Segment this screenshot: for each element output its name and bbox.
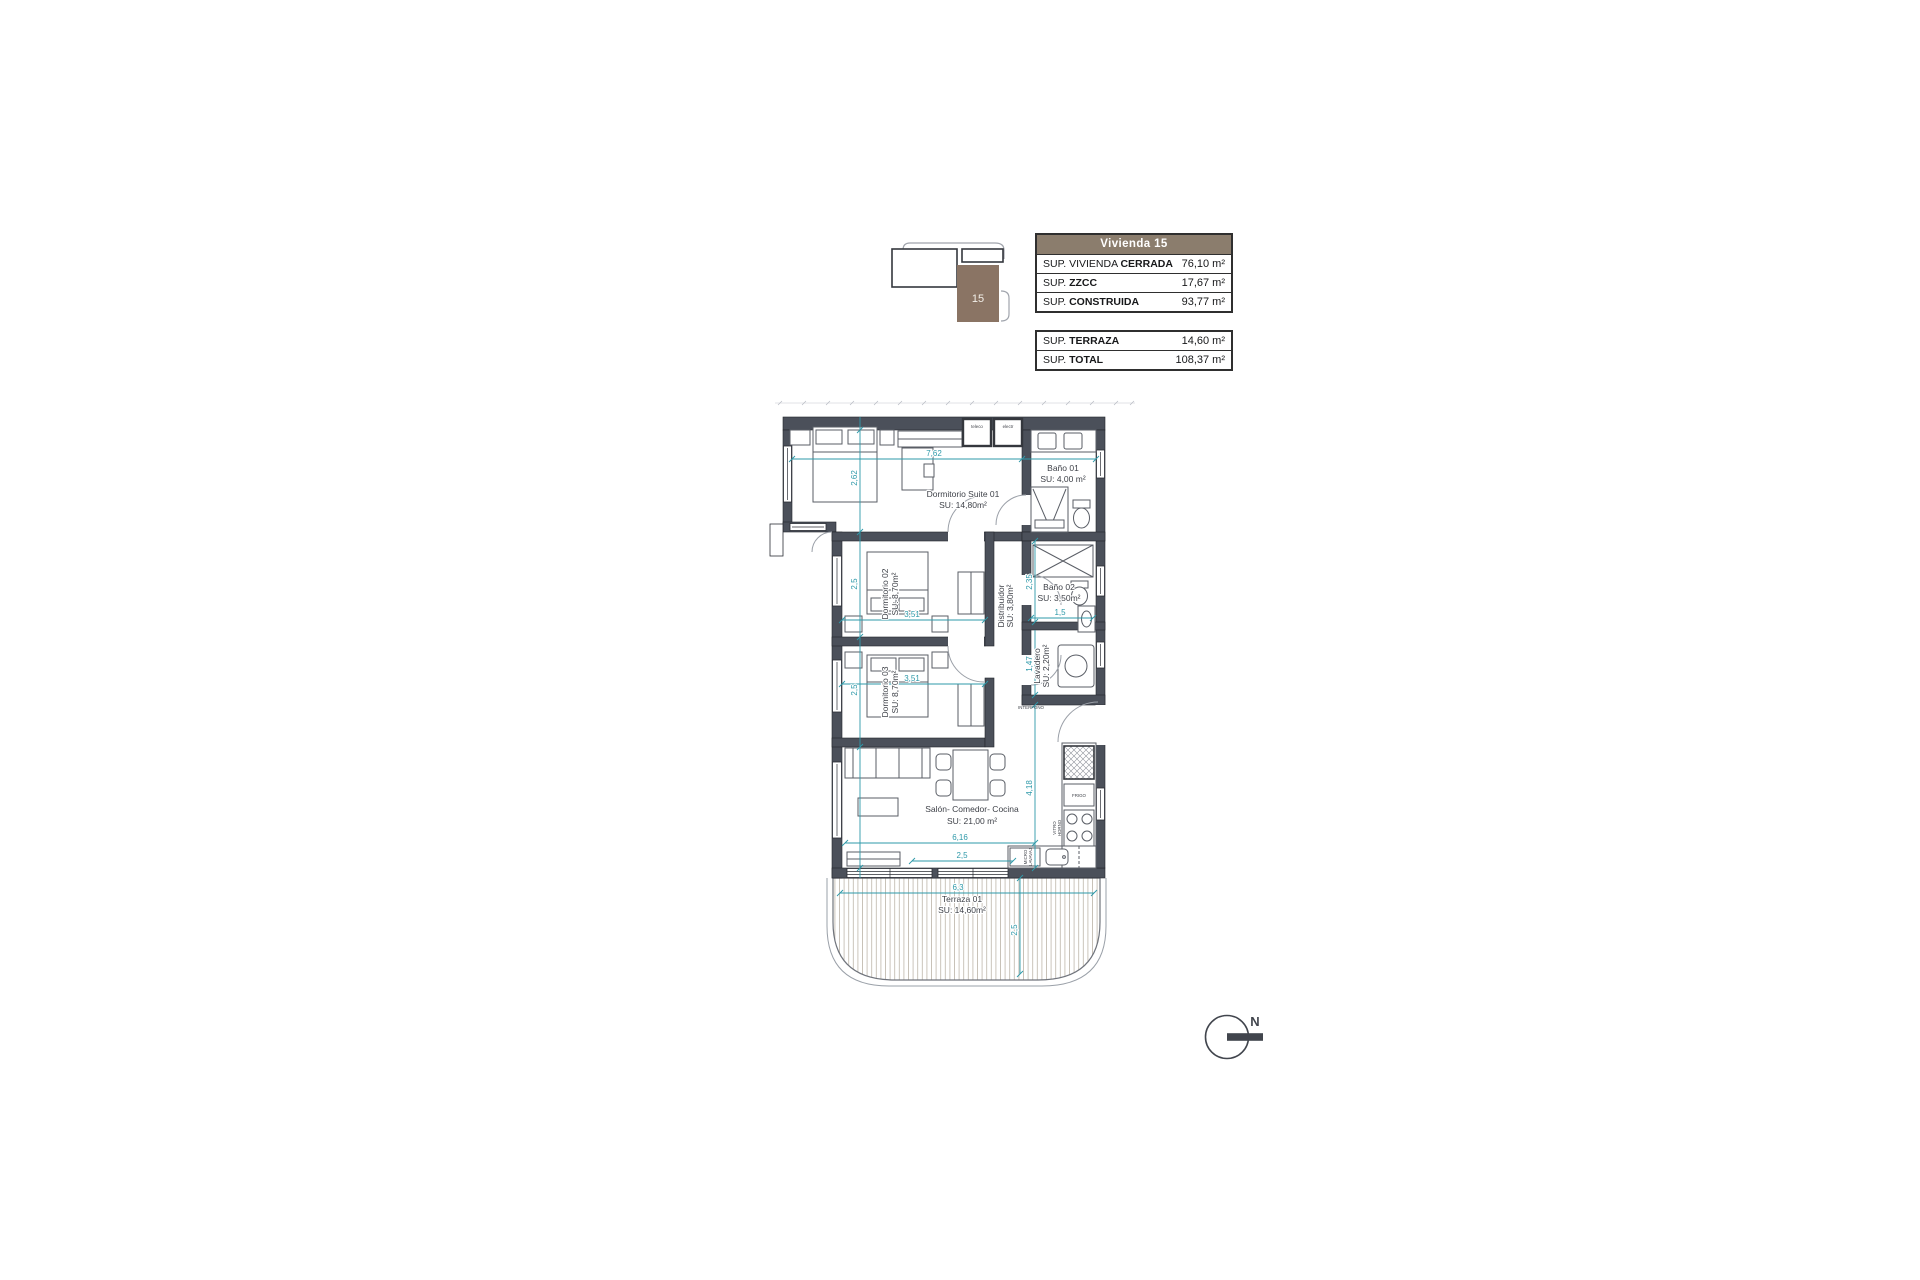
dim-dorm3-width: 3,51 <box>904 674 920 683</box>
wardrobe-suite <box>898 431 962 447</box>
svg-text:SU: 4,00 m²: SU: 4,00 m² <box>1040 474 1086 484</box>
micro-lavavaj-label: MICRO LAVAVAJ <box>1023 848 1033 866</box>
dim-dorm2-height: 2,5 <box>850 578 859 590</box>
svg-text:SU: 2,20m²: SU: 2,20m² <box>1041 644 1051 687</box>
room-label-bano-02: Baño 02 SU: 3,50m² <box>1038 582 1081 603</box>
svg-text:SU: 3,80m²: SU: 3,80m² <box>1005 584 1015 627</box>
room-label-dormitorio-03: Dormitorio 03 SU: 8,70m² <box>880 666 900 717</box>
svg-text:HORNO: HORNO <box>1057 819 1062 836</box>
key-plan: 15 <box>892 243 1009 322</box>
sideboard <box>847 852 900 866</box>
nightstand <box>932 616 948 632</box>
svg-text:Baño 02: Baño 02 <box>1043 582 1075 592</box>
north-arrow-bar <box>1227 1033 1263 1041</box>
svg-text:SU: 21,00 m²: SU: 21,00 m² <box>947 816 997 826</box>
plan-drawing: 15 <box>0 0 1920 1280</box>
coffee-table <box>858 798 898 816</box>
room-label-salon: Salón- Comedor- Cocina SU: 21,00 m² <box>925 804 1019 826</box>
dining-table <box>936 750 1005 800</box>
svg-text:Dormitorio 03: Dormitorio 03 <box>880 666 890 717</box>
dim-salon-width2: 2,5 <box>956 851 968 860</box>
nightstand <box>932 652 948 668</box>
nightstand <box>845 616 862 632</box>
shower-bano1 <box>1031 487 1068 532</box>
dimension-chain <box>775 401 1135 405</box>
key-plan-unit-number: 15 <box>972 293 984 305</box>
dim-salon-height: 4,18 <box>1025 780 1034 796</box>
floor-plan-sheet: Vivienda 15 SUP. VIVIENDA CERRADA 76,10 … <box>0 0 1920 1280</box>
teleco-label: teleco <box>971 424 983 429</box>
svg-text:SU: 14,60m²: SU: 14,60m² <box>938 905 986 915</box>
room-label-lavadero: Lavadero SU: 2,20m² <box>1032 644 1051 687</box>
electr-label: electr <box>1003 424 1014 429</box>
sofa <box>845 748 930 778</box>
svg-text:Baño 01: Baño 01 <box>1047 463 1079 473</box>
key-plan-block <box>892 249 957 287</box>
svg-text:LAVAVAJ: LAVAVAJ <box>1028 848 1033 866</box>
dim-terraza-width: 6,3 <box>952 883 964 892</box>
dim-dorm3-height: 2,5 <box>850 684 859 696</box>
room-label-dormitorio-02: Dormitorio 02 SU: 8,70m² <box>880 568 900 619</box>
north-arrow: N <box>1206 1014 1264 1059</box>
svg-text:SU: 8,70m²: SU: 8,70m² <box>890 670 900 713</box>
svg-text:Dormitorio Suite 01: Dormitorio Suite 01 <box>927 489 1000 499</box>
washer-lavadero <box>1058 645 1094 687</box>
wardrobe-dorm2 <box>958 572 984 614</box>
dim-dorm2-width: 3,51 <box>904 610 920 619</box>
dim-salon-width: 6,16 <box>952 833 968 842</box>
room-label-distribuidor: Distribuidor SU: 3,80m² <box>996 584 1015 627</box>
svg-text:Dormitorio 02: Dormitorio 02 <box>880 568 890 619</box>
room-label-dormitorio-suite-01: Dormitorio Suite 01 SU: 14,80m² <box>927 489 1000 510</box>
nightstand <box>845 652 862 668</box>
shower-bano2 <box>1033 545 1093 577</box>
vitro-horno-label: VITRO HORNO <box>1052 819 1062 836</box>
kitchen-counter <box>1008 743 1096 868</box>
nightstand <box>790 430 810 445</box>
svg-text:SU: 3,50m²: SU: 3,50m² <box>1038 593 1081 603</box>
interfono-label: INTERFONO <box>1018 705 1044 710</box>
svg-text:SU: 14,80m²: SU: 14,80m² <box>939 500 987 510</box>
nightstand <box>880 430 894 445</box>
dim-bano2-height: 2,35 <box>1025 574 1034 590</box>
north-label: N <box>1250 1014 1259 1029</box>
dim-bano2-width: 1,5 <box>1054 608 1066 617</box>
key-plan-block <box>962 249 1003 262</box>
dim-suite-width: 7,62 <box>926 449 942 458</box>
room-label-bano-01: Baño 01 SU: 4,00 m² <box>1040 463 1086 484</box>
frigo-label: FRIGO <box>1072 793 1086 798</box>
vanity-bano1 <box>1031 430 1096 452</box>
svg-text:SU: 8,70m²: SU: 8,70m² <box>890 572 900 615</box>
bed-suite <box>813 427 877 502</box>
wardrobe-dorm3 <box>958 684 984 726</box>
toilet-bano1 <box>1073 500 1090 528</box>
svg-text:Terraza 01: Terraza 01 <box>942 894 982 904</box>
dim-terraza-height: 2,5 <box>1010 924 1019 936</box>
dim-suite-height: 2,62 <box>850 470 859 486</box>
svg-text:Salón- Comedor- Cocina: Salón- Comedor- Cocina <box>925 804 1019 814</box>
room-label-terraza: Terraza 01 SU: 14,60m² <box>938 894 986 915</box>
